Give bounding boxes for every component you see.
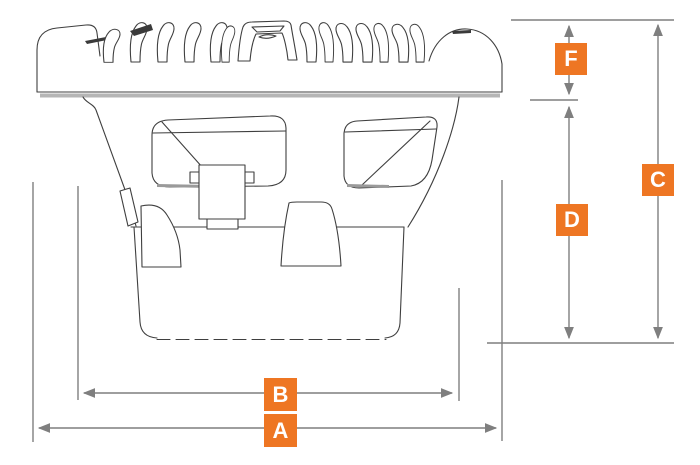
fin <box>374 23 389 62</box>
fin <box>157 23 174 62</box>
fin-crown <box>103 21 424 62</box>
fin <box>392 24 409 62</box>
dimension-label-f: F <box>555 43 587 75</box>
dimension-diagram: F C D B A <box>0 0 700 465</box>
dimension-label-a: A <box>264 414 297 447</box>
top-plate-left-corner <box>37 25 100 92</box>
fin <box>356 23 373 62</box>
leg-left <box>141 205 181 267</box>
magnet-right-edge <box>385 227 404 338</box>
basket-window-right <box>344 117 437 188</box>
dimension-label-b: B <box>264 378 297 411</box>
window-right-shadow <box>347 186 389 187</box>
dimension-label-c: C <box>642 164 674 196</box>
terminal-tab <box>207 219 238 229</box>
fin <box>184 23 201 62</box>
diagram-canvas <box>0 0 700 465</box>
top-plate-right-dome <box>429 29 502 92</box>
terminal-block <box>190 165 254 229</box>
fin <box>103 29 120 62</box>
leg-center <box>281 202 341 266</box>
terminal-body <box>199 165 245 219</box>
fin <box>410 24 425 62</box>
dimension-label-d: D <box>556 204 588 236</box>
basket-left-bracket <box>120 188 138 226</box>
fin <box>336 23 353 62</box>
fin <box>319 23 334 62</box>
speaker-line-art <box>37 21 502 340</box>
fin-bridge-lens <box>259 35 276 39</box>
fin <box>300 23 317 62</box>
